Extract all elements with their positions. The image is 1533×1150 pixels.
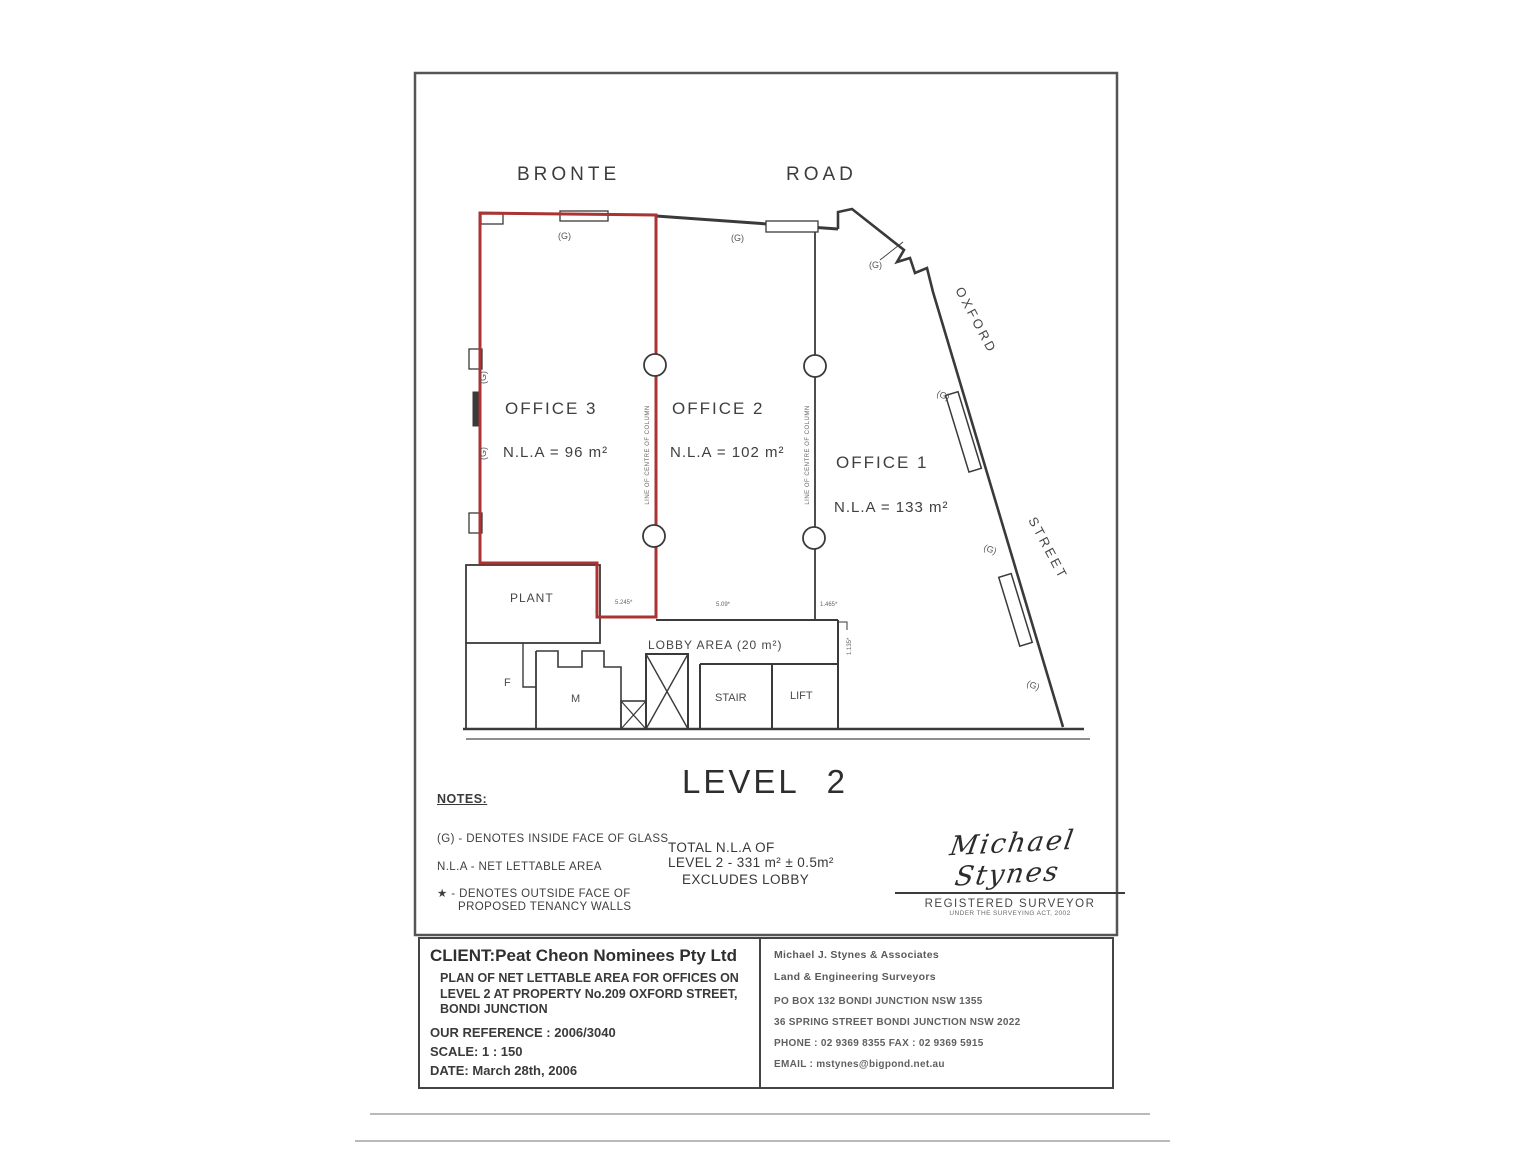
svg-text:1.465*: 1.465*: [820, 602, 838, 608]
client-name: CLIENT:Peat Cheon Nominees Pty Ltd: [430, 946, 752, 966]
office3-label: OFFICE 3: [505, 399, 598, 418]
reference-number: OUR REFERENCE : 2006/3040: [430, 1025, 752, 1040]
title-block-right: Michael J. Stynes & Associates Land & En…: [774, 949, 1104, 1070]
female-amenities-label: F: [504, 677, 511, 689]
street-label-bronte: BRONTE: [517, 164, 620, 185]
office1-nla: N.L.A = 133 m²: [834, 499, 948, 516]
lift-label: LIFT: [790, 690, 813, 702]
street-label-oxford: OXFORD: [952, 284, 1000, 356]
stair-label: STAIR: [715, 692, 747, 704]
street-label-road: ROAD: [786, 164, 857, 185]
svg-text:(G): (G): [1025, 678, 1041, 692]
office2-nla: N.L.A = 102 m²: [670, 444, 784, 461]
plan-description-2: LEVEL 2 AT PROPERTY No.209 OXFORD STREET…: [440, 987, 752, 1003]
signature-block: Michael Stynes REGISTERED SURVEYOR UNDER…: [895, 828, 1125, 917]
note-glass: (G) - DENOTES INSIDE FACE OF GLASS: [437, 834, 677, 846]
note-nla: N.L.A - NET LETTABLE AREA: [437, 862, 677, 874]
total-nla-block: TOTAL N.L.A OF LEVEL 2 - 331 m² ± 0.5m² …: [668, 840, 908, 887]
firm-phone-fax: PHONE : 02 9369 8355 FAX : 02 9369 5915: [774, 1038, 1104, 1049]
office1-label: OFFICE 1: [836, 453, 929, 472]
title-block: CLIENT:Peat Cheon Nominees Pty Ltd PLAN …: [418, 937, 1114, 1089]
level-title: LEVEL 2: [682, 763, 848, 800]
svg-text:(G): (G): [731, 233, 744, 243]
surveying-act-label: UNDER THE SURVEYING ACT, 2002: [895, 910, 1125, 917]
firm-type: Land & Engineering Surveyors: [774, 971, 1104, 983]
svg-text:5.245*: 5.245*: [615, 600, 633, 606]
column-line-note-left: LINE OF CENTRE OF COLUMN: [645, 405, 651, 504]
glass-annotations: (G) (G) (G) (G) (G) (G) (G) (G): [478, 231, 1041, 692]
scan-artifact-line-1: [370, 1113, 1150, 1115]
plant-label: PLANT: [510, 591, 554, 605]
svg-text:5.09*: 5.09*: [716, 602, 731, 608]
firm-email: EMAIL : mstynes@bigpond.net.au: [774, 1059, 1104, 1070]
building-walls: [463, 209, 1090, 739]
notes-heading: NOTES:: [437, 792, 677, 806]
total-line-2: LEVEL 2 - 331 m² ± 0.5m²: [668, 855, 908, 870]
registered-surveyor-label: REGISTERED SURVEYOR: [895, 898, 1125, 910]
title-block-left: CLIENT:Peat Cheon Nominees Pty Ltd PLAN …: [430, 946, 752, 1078]
firm-street-address: 36 SPRING STREET BONDI JUNCTION NSW 2022: [774, 1017, 1104, 1028]
plan-description-3: BONDI JUNCTION: [440, 1002, 752, 1018]
column-line-note-right: LINE OF CENTRE OF COLUMN: [805, 405, 811, 504]
note-star-1: ★ - DENOTES OUTSIDE FACE OF: [437, 889, 677, 901]
notes-block: NOTES: (G) - DENOTES INSIDE FACE OF GLAS…: [437, 792, 677, 913]
office2-label: OFFICE 2: [672, 399, 765, 418]
scanned-survey-plan-page: BRONTE ROAD OXFORD STREET: [0, 0, 1533, 1150]
title-block-divider: [759, 939, 761, 1087]
date-value: DATE: March 28th, 2006: [430, 1063, 752, 1078]
scale-value: SCALE: 1 : 150: [430, 1044, 752, 1059]
svg-text:(G): (G): [478, 447, 488, 460]
svg-text:(G): (G): [478, 371, 488, 384]
male-amenities-label: M: [571, 693, 580, 705]
total-line-3: EXCLUDES LOBBY: [682, 872, 908, 887]
surveyor-signature: Michael Stynes: [889, 822, 1131, 896]
svg-text:(G): (G): [558, 231, 571, 241]
svg-text:1.135*: 1.135*: [847, 637, 853, 655]
svg-text:(G): (G): [982, 542, 998, 556]
scan-artifact-line-2: [355, 1140, 1170, 1142]
svg-text:(G): (G): [869, 260, 882, 270]
plan-description-1: PLAN OF NET LETTABLE AREA FOR OFFICES ON: [440, 971, 752, 987]
total-line-1: TOTAL N.L.A OF: [668, 840, 908, 855]
note-star-2: PROPOSED TENANCY WALLS: [458, 902, 677, 914]
firm-po-box: PO BOX 132 BONDI JUNCTION NSW 1355: [774, 996, 1104, 1007]
firm-name: Michael J. Stynes & Associates: [774, 949, 1104, 961]
street-label-street: STREET: [1025, 514, 1071, 582]
office3-nla: N.L.A = 96 m²: [503, 444, 608, 461]
lobby-label: LOBBY AREA (20 m²): [648, 638, 783, 652]
